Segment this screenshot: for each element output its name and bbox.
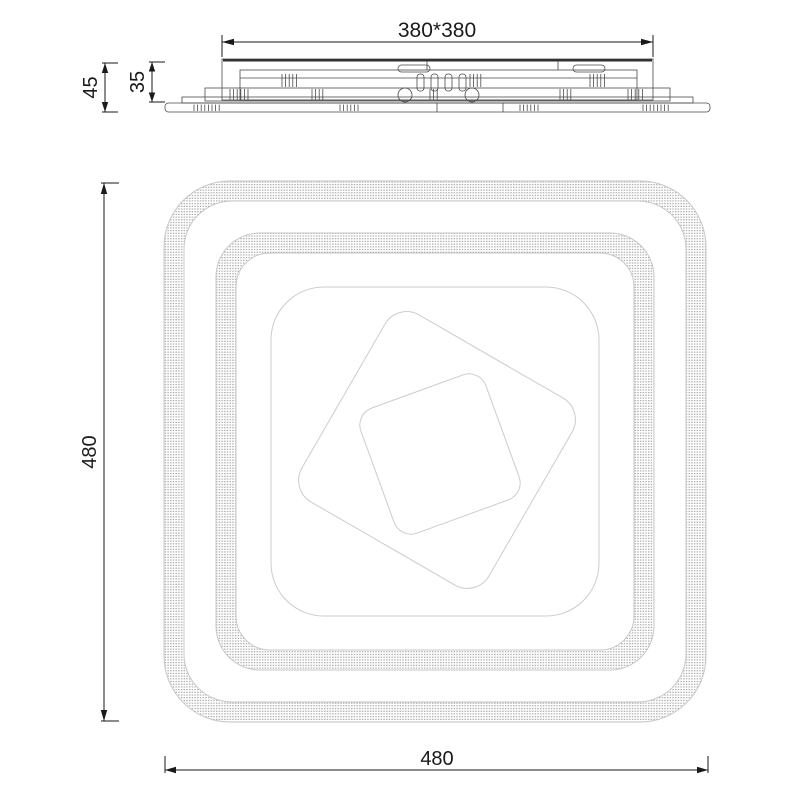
side-vent-slots	[417, 74, 466, 91]
side-clip-right	[573, 65, 605, 72]
inner-ring-inner-edge	[236, 253, 634, 650]
side-layer-inner	[240, 70, 637, 100]
dim-label-380x380: 380*380	[398, 19, 476, 42]
dimension-35: 35	[127, 62, 165, 102]
dim-label-45: 45	[80, 76, 102, 98]
dimension-480-height: 480	[79, 183, 119, 721]
side-hatch-inner	[282, 74, 604, 87]
dim-label-480-height: 480	[79, 435, 101, 468]
side-view-drawing	[165, 59, 710, 112]
drawing-canvas: 380*380 45 35 480 480	[0, 0, 800, 800]
front-view-drawing	[164, 181, 706, 722]
dimension-45: 45	[80, 63, 118, 112]
dimension-380x380: 380*380	[222, 19, 653, 57]
side-hatch-base	[194, 105, 668, 112]
dimension-480-width: 480	[165, 748, 708, 773]
dim-label-35: 35	[127, 71, 149, 93]
side-clip-left	[398, 65, 430, 72]
side-diffuser-base	[165, 103, 710, 112]
side-construction-lines	[427, 61, 558, 112]
dim-label-480-width: 480	[420, 748, 453, 770]
technical-drawing: 380*380 45 35 480 480	[0, 0, 800, 800]
